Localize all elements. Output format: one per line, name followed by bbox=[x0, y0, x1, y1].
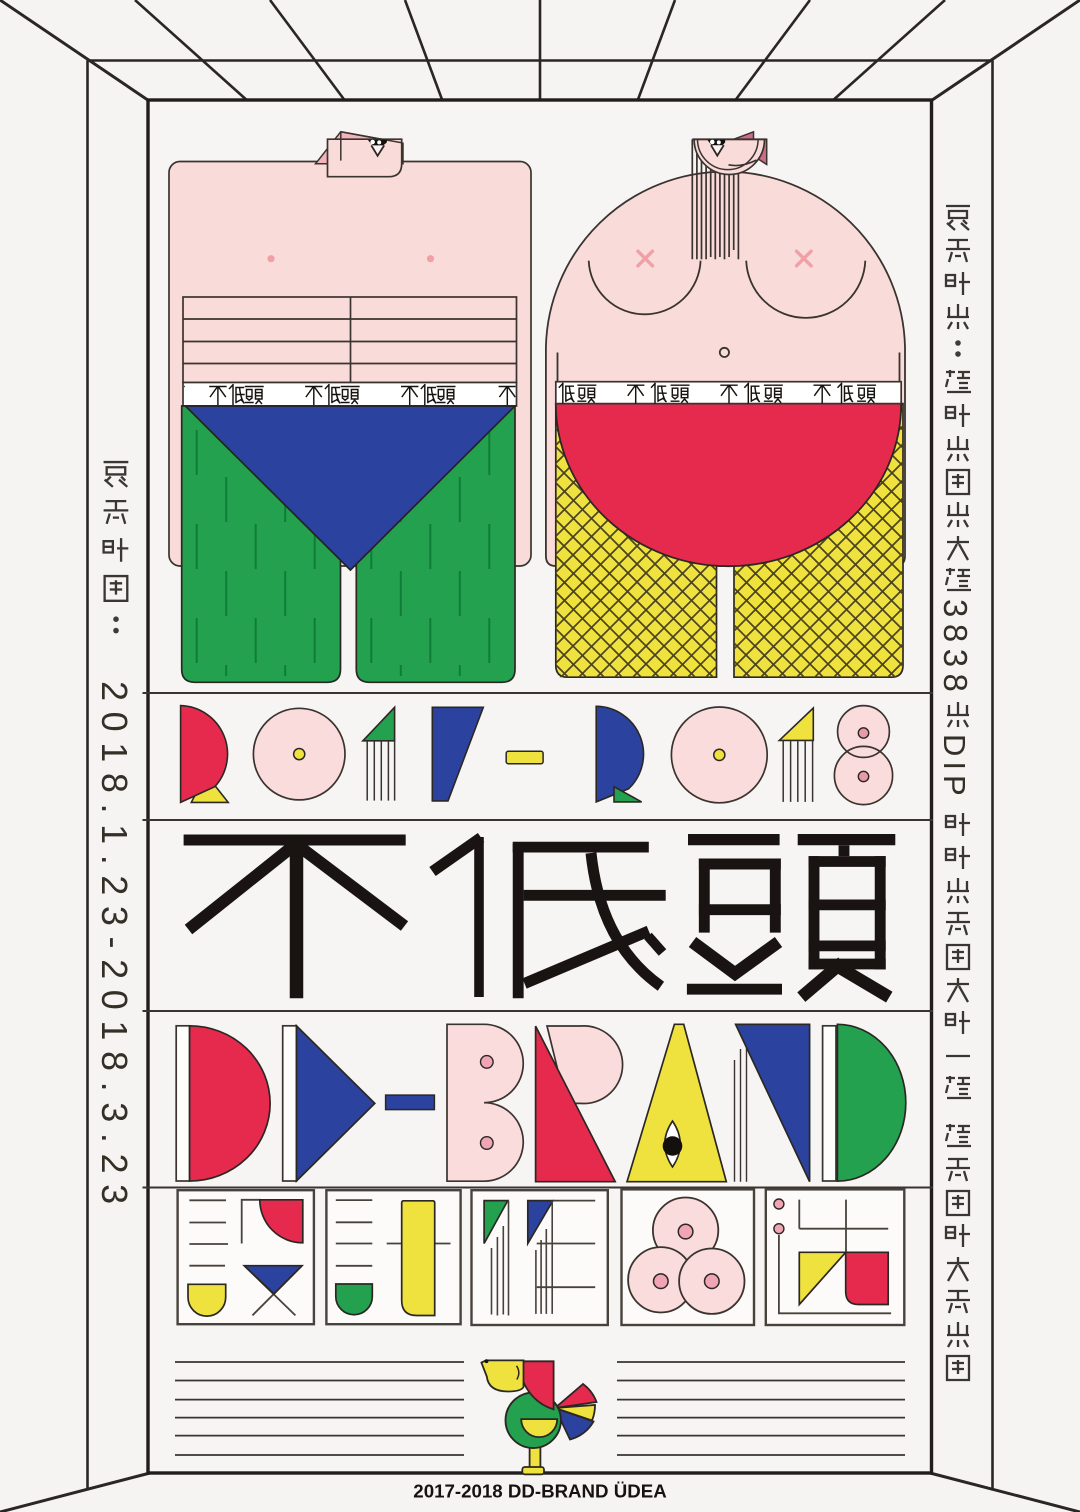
svg-text:3838: 3838 bbox=[937, 599, 974, 698]
svg-text:2018.1.23-2018.3.23: 2018.1.23-2018.3.23 bbox=[94, 681, 135, 1215]
svg-text:DIP: DIP bbox=[937, 734, 972, 801]
svg-text:2017-2018 DD-BRAND ÜDEA: 2017-2018 DD-BRAND ÜDEA bbox=[413, 1481, 666, 1502]
